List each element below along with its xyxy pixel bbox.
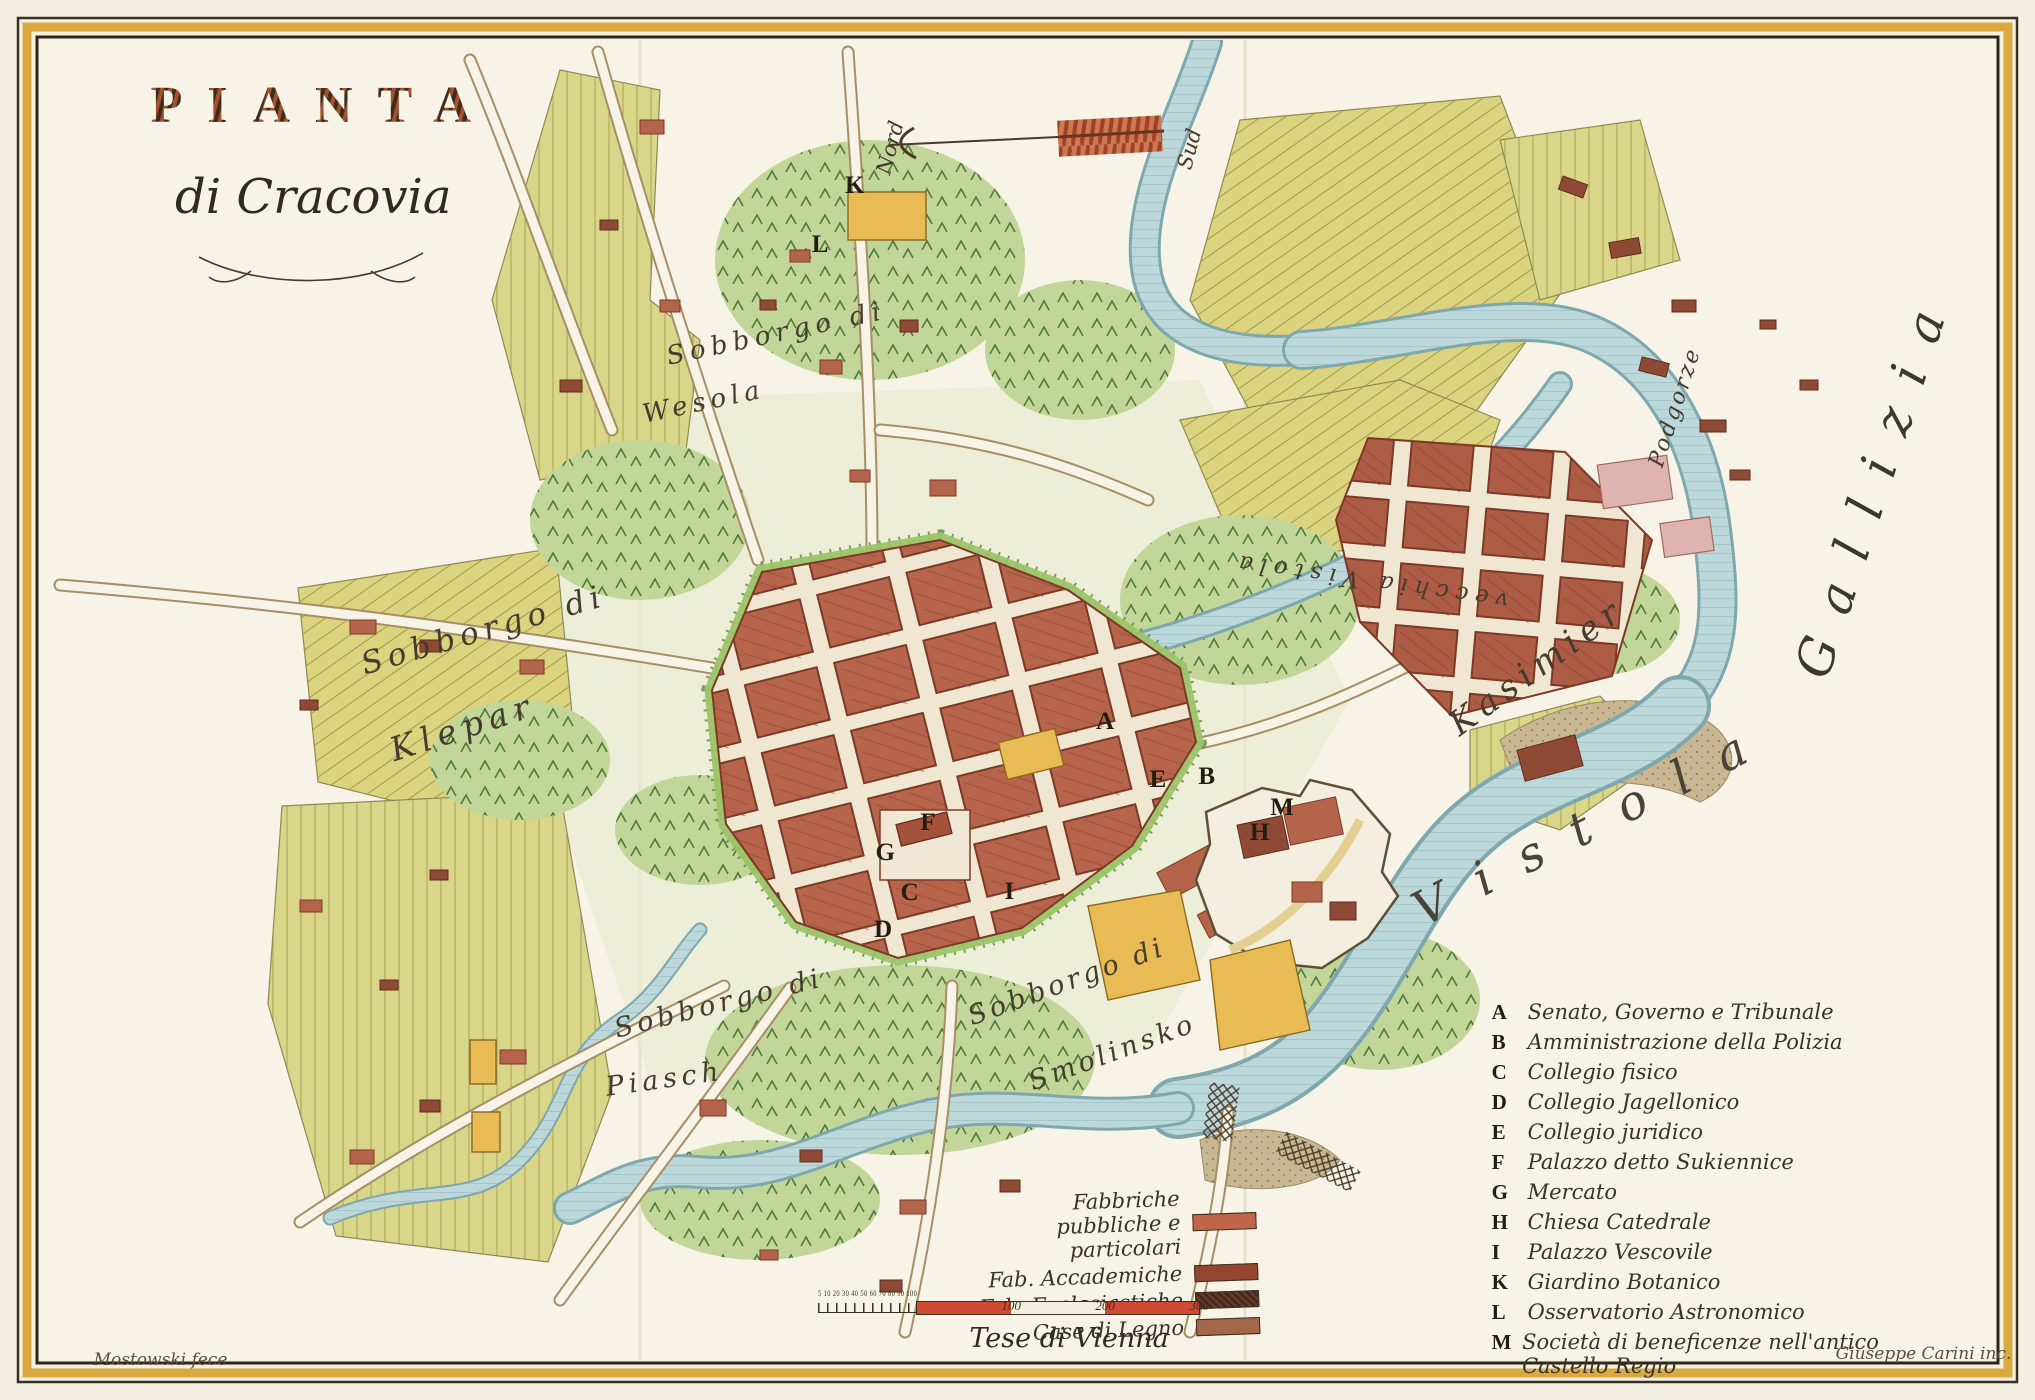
map-marker-D: D xyxy=(874,916,892,944)
legend-row-D: DCollegio Jagellonico xyxy=(1492,1090,1960,1115)
legend-letter: I xyxy=(1492,1240,1528,1265)
legend-letter: F xyxy=(1492,1150,1528,1175)
legend-row-I: IPalazzo Vescovile xyxy=(1492,1240,1960,1265)
legend-letter: B xyxy=(1492,1030,1528,1055)
map-marker-C: C xyxy=(901,879,919,907)
page-subtitle: di Cracovia xyxy=(175,169,452,225)
key-label: Fab. Accademiche xyxy=(988,1261,1183,1292)
legend-row-E: ECollegio juridico xyxy=(1492,1120,1960,1145)
scale-minor-labels: 5 10 20 30 40 50 60 70 80 90 100 xyxy=(818,1289,917,1298)
legend-row-H: HChiesa Catedrale xyxy=(1492,1210,1960,1235)
legend-row-L: LOsservatorio Astronomico xyxy=(1492,1300,1960,1325)
scale-segment xyxy=(1105,1302,1199,1314)
legend-row-F: FPalazzo detto Sukiennice xyxy=(1492,1150,1960,1175)
scale-segment xyxy=(1011,1302,1105,1314)
credit-left: Mostowski fece xyxy=(94,1350,228,1370)
legend-row-B: BAmministrazione della Polizia xyxy=(1492,1030,1960,1055)
scale-minor-ruler xyxy=(818,1303,916,1313)
legend-label: Osservatorio Astronomico xyxy=(1528,1300,1805,1324)
legend-row-A: ASenato, Governo e Tribunale xyxy=(1492,1000,1960,1025)
map-marker-A: A xyxy=(1096,708,1114,736)
map-marker-H: H xyxy=(1250,819,1269,847)
map-marker-B: B xyxy=(1198,763,1215,791)
legend-label: Senato, Governo e Tribunale xyxy=(1528,1000,1834,1024)
key-label: Fabbriche pubbliche e particolari xyxy=(970,1186,1181,1265)
legend-row-K: KGiardino Botanico xyxy=(1492,1270,1960,1295)
legend-row-C: CCollegio fisico xyxy=(1492,1060,1960,1085)
map-marker-E: E xyxy=(1150,766,1167,794)
scale-caption: Tese di Vienna xyxy=(928,1323,1210,1354)
legend-letter: K xyxy=(1492,1270,1528,1295)
legend-letter: D xyxy=(1492,1090,1528,1115)
legend-letter: C xyxy=(1492,1060,1528,1085)
legend-label: Collegio juridico xyxy=(1528,1120,1703,1144)
legend-letter: M xyxy=(1492,1330,1522,1355)
map-marker-L: L xyxy=(812,231,829,259)
map-marker-G: G xyxy=(875,839,894,867)
key-row: Fabbriche pubbliche e particolari xyxy=(970,1184,1257,1266)
key-swatch xyxy=(1192,1211,1257,1230)
legend-label: Giardino Botanico xyxy=(1528,1270,1721,1294)
legend-label: Mercato xyxy=(1528,1180,1617,1204)
legend-row-G: GMercato xyxy=(1492,1180,1960,1205)
scale-number: 100 xyxy=(1001,1298,1021,1314)
key-swatch xyxy=(1194,1262,1259,1281)
legend-label: Amministrazione della Polizia xyxy=(1528,1030,1843,1054)
map-marker-M: M xyxy=(1270,794,1294,822)
scale-number: 200 xyxy=(1095,1298,1115,1314)
legend-label: Chiesa Catedrale xyxy=(1528,1210,1711,1234)
map-marker-I: I xyxy=(1004,878,1014,906)
legend-label: Collegio Jagellonico xyxy=(1528,1090,1740,1114)
credit-right: Giuseppe Carini inc. xyxy=(1836,1344,2012,1364)
page-title: PIANTA xyxy=(151,76,496,135)
scale-main-bar: 100200300 xyxy=(916,1301,1200,1315)
legend-letter: E xyxy=(1492,1120,1528,1145)
legend: ASenato, Governo e TribunaleBAmministraz… xyxy=(1492,1000,1960,1383)
map-marker-F: F xyxy=(920,809,935,837)
legend-letter: A xyxy=(1492,1000,1528,1025)
legend-label: Collegio fisico xyxy=(1528,1060,1678,1084)
legend-letter: H xyxy=(1492,1210,1528,1235)
scale-number: 300 xyxy=(1189,1298,1209,1314)
map-marker-K: K xyxy=(845,172,864,200)
legend-letter: G xyxy=(1492,1180,1528,1205)
map-sheet: PIANTA di Cracovia Nord Sud Sobborgo di … xyxy=(0,0,2035,1400)
legend-label: Palazzo Vescovile xyxy=(1528,1240,1713,1264)
legend-label: Palazzo detto Sukiennice xyxy=(1528,1150,1794,1174)
scale-segment xyxy=(917,1302,1011,1314)
legend-letter: L xyxy=(1492,1300,1528,1325)
title-flourish xyxy=(191,249,431,291)
